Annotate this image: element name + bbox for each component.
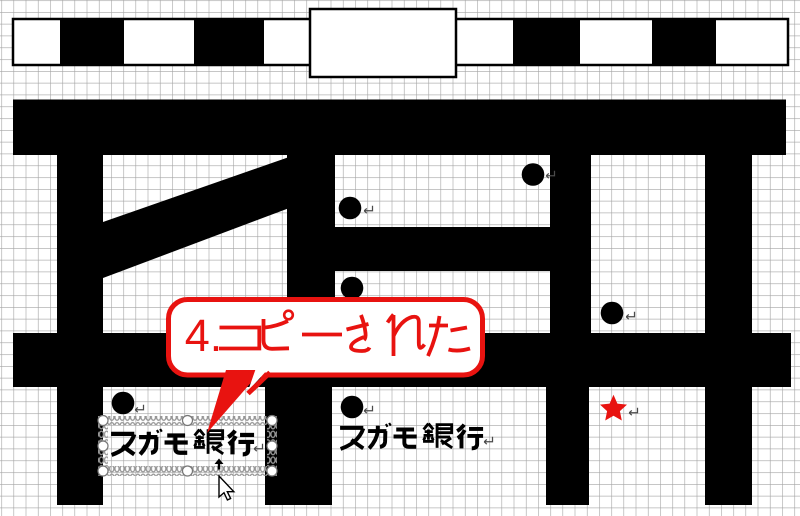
- svg-text:4.: 4.: [185, 310, 223, 361]
